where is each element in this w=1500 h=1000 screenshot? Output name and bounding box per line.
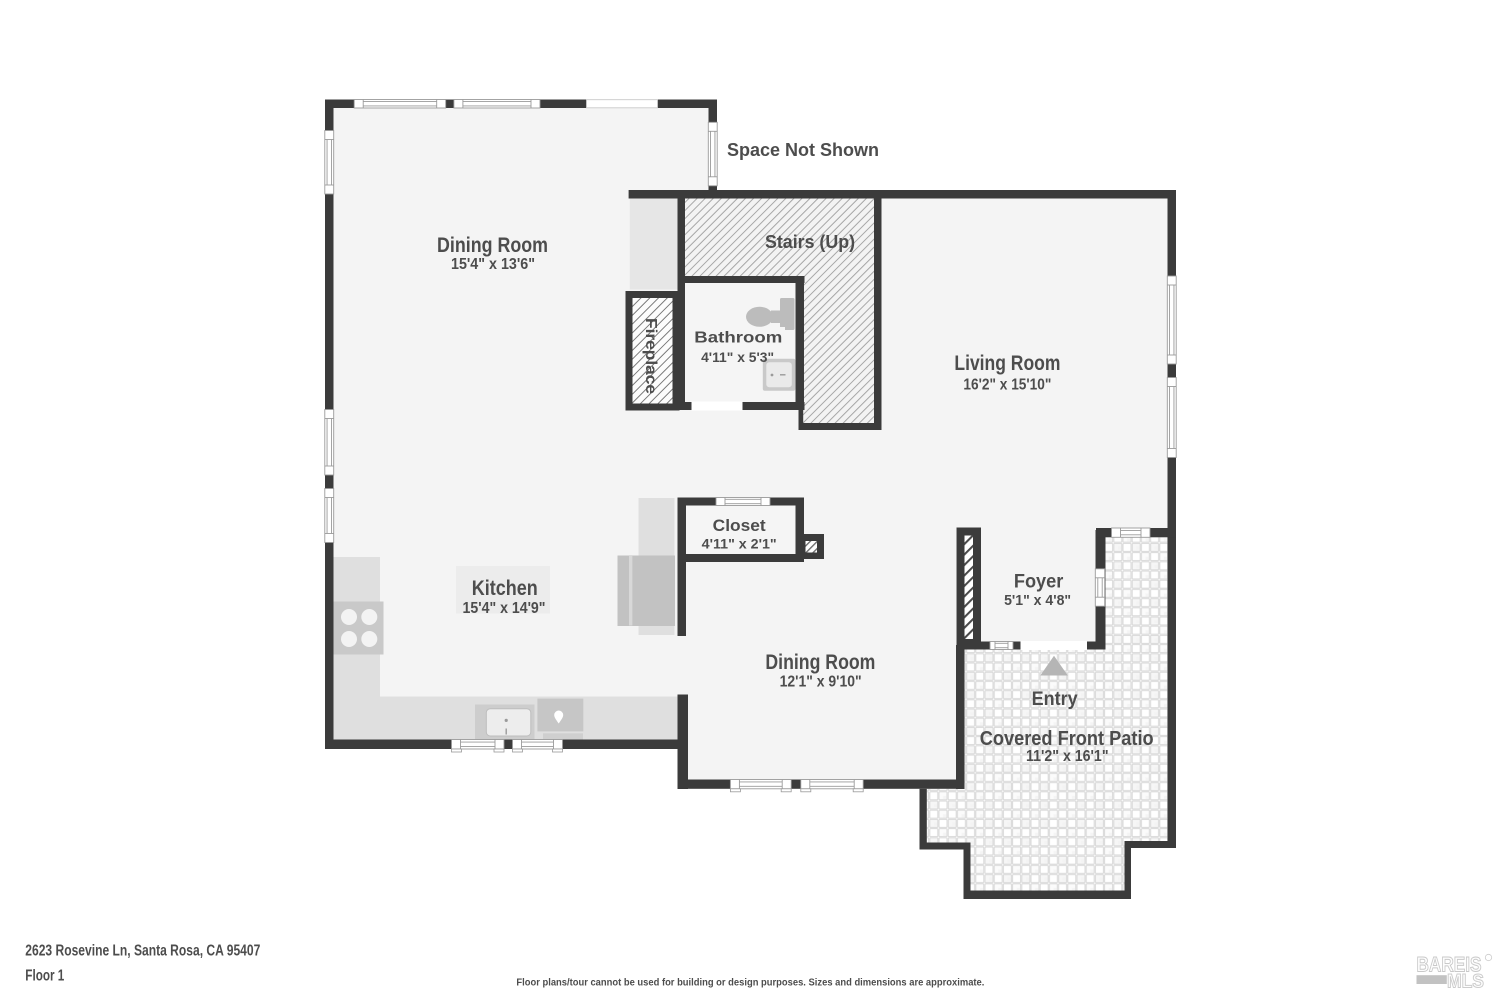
svg-text:Stairs (Up): Stairs (Up) bbox=[765, 232, 855, 252]
svg-text:Dining Room: Dining Room bbox=[765, 650, 875, 674]
svg-text:4'11" x 5'3": 4'11" x 5'3" bbox=[701, 349, 774, 365]
svg-text:Covered Front Patio: Covered Front Patio bbox=[980, 727, 1154, 750]
svg-text:Bathroom: Bathroom bbox=[694, 329, 782, 346]
svg-text:5'1" x 4'8": 5'1" x 4'8" bbox=[1004, 592, 1071, 609]
svg-text:15'4" x 13'6": 15'4" x 13'6" bbox=[451, 256, 535, 273]
svg-text:12'1" x 9'10": 12'1" x 9'10" bbox=[780, 674, 862, 691]
svg-text:15'4" x 14'9": 15'4" x 14'9" bbox=[463, 600, 546, 617]
svg-text:MLS: MLS bbox=[1447, 972, 1484, 993]
svg-text:Foyer: Foyer bbox=[1014, 571, 1064, 593]
svg-text:Kitchen: Kitchen bbox=[472, 576, 538, 600]
svg-text:Floor 1: Floor 1 bbox=[25, 968, 64, 985]
svg-text:Space Not Shown: Space Not Shown bbox=[727, 140, 879, 160]
svg-text:16'2" x 15'10": 16'2" x 15'10" bbox=[963, 377, 1051, 394]
svg-text:4'11" x 2'1": 4'11" x 2'1" bbox=[702, 537, 777, 552]
svg-text:Floor plans/tour cannot be use: Floor plans/tour cannot be used for buil… bbox=[516, 977, 984, 989]
svg-text:Closet: Closet bbox=[713, 516, 766, 535]
svg-text:11'2" x 16'1": 11'2" x 16'1" bbox=[1026, 748, 1109, 765]
svg-text:Living Room: Living Room bbox=[954, 351, 1060, 375]
svg-text:Dining Room: Dining Room bbox=[437, 233, 548, 257]
svg-text:2623 Rosevine Ln, Santa Rosa,: 2623 Rosevine Ln, Santa Rosa, CA 95407 bbox=[25, 942, 260, 959]
svg-text:Entry: Entry bbox=[1032, 688, 1078, 710]
svg-text:Fireplace: Fireplace bbox=[642, 318, 659, 394]
